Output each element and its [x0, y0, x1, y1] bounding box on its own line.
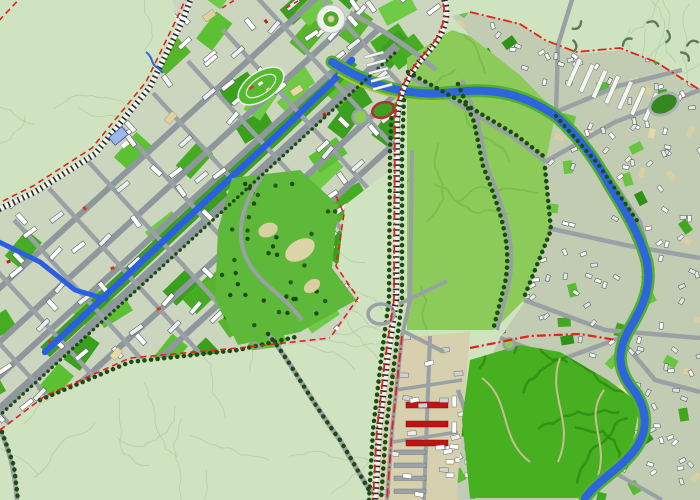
city-buildings — [659, 322, 663, 329]
hill-trees — [289, 280, 293, 284]
hill-trees — [230, 227, 234, 231]
district-gray-terraces — [394, 463, 426, 468]
district-white-rows — [446, 460, 454, 465]
district-buildings — [435, 445, 444, 451]
district-white-rows — [446, 473, 454, 478]
hill-trees — [323, 299, 327, 303]
hill-trees — [326, 209, 330, 213]
district-white-slabs — [452, 396, 457, 407]
hill-trees — [262, 298, 266, 302]
hill-trees — [245, 228, 249, 232]
city-buildings — [654, 83, 658, 90]
district-buildings — [407, 431, 416, 436]
sports-roundabout — [353, 110, 368, 125]
master-plan-map[interactable] — [0, 0, 700, 500]
hill-trees — [271, 244, 275, 248]
city-buildings — [654, 424, 661, 428]
hill-trees — [247, 215, 251, 219]
hill-trees — [228, 293, 232, 297]
hill-trees — [243, 293, 247, 297]
district-buildings — [402, 473, 411, 478]
city-buildings — [689, 106, 696, 110]
map-viewport[interactable] — [0, 0, 700, 500]
plaza-core — [328, 16, 335, 23]
city-buildings — [673, 388, 680, 392]
hill-trees — [302, 263, 306, 267]
hill-trees — [245, 237, 249, 241]
city-buildings — [668, 369, 675, 373]
district-buildings — [454, 371, 463, 376]
hill-trees — [252, 323, 256, 327]
hill-trees — [232, 258, 236, 262]
city-buildings — [578, 336, 583, 343]
hill-trees — [256, 193, 260, 197]
hill-trees — [266, 251, 270, 255]
city-buildings — [663, 128, 668, 135]
hill-trees — [284, 294, 288, 298]
sports-roundabout — [353, 110, 368, 125]
hill-trees — [333, 209, 337, 213]
city-buildings — [591, 263, 598, 267]
city-buildings — [554, 53, 558, 60]
city-buildings — [509, 47, 516, 51]
hill-trees — [252, 201, 256, 205]
hill-trees — [275, 253, 279, 257]
hill-trees — [285, 311, 289, 315]
hill-trees — [236, 282, 240, 286]
hill-trees — [273, 184, 277, 188]
district-buildings — [440, 398, 449, 403]
city-buildings — [677, 466, 684, 470]
hill-trees — [243, 182, 247, 186]
plaza-core — [328, 16, 335, 23]
city-buildings — [645, 226, 652, 231]
district-red-terraces — [406, 421, 448, 427]
district-buildings — [418, 403, 427, 408]
hill-trees — [290, 182, 294, 186]
district-white-slabs — [452, 422, 457, 433]
district-buildings — [400, 373, 409, 378]
city-buildings — [680, 215, 687, 219]
hill-trees — [274, 235, 278, 239]
city-buildings — [628, 98, 632, 105]
hill-trees — [234, 271, 238, 275]
hill-trees — [314, 311, 318, 315]
city-tans — [694, 316, 700, 323]
city-buildings — [622, 165, 629, 170]
city-buildings — [645, 121, 649, 128]
hill-trees — [309, 232, 313, 236]
hill-trees — [220, 273, 224, 277]
district-buildings — [439, 467, 448, 472]
hill-trees — [291, 297, 295, 301]
hill-trees — [277, 310, 281, 314]
city-buildings — [687, 215, 691, 222]
